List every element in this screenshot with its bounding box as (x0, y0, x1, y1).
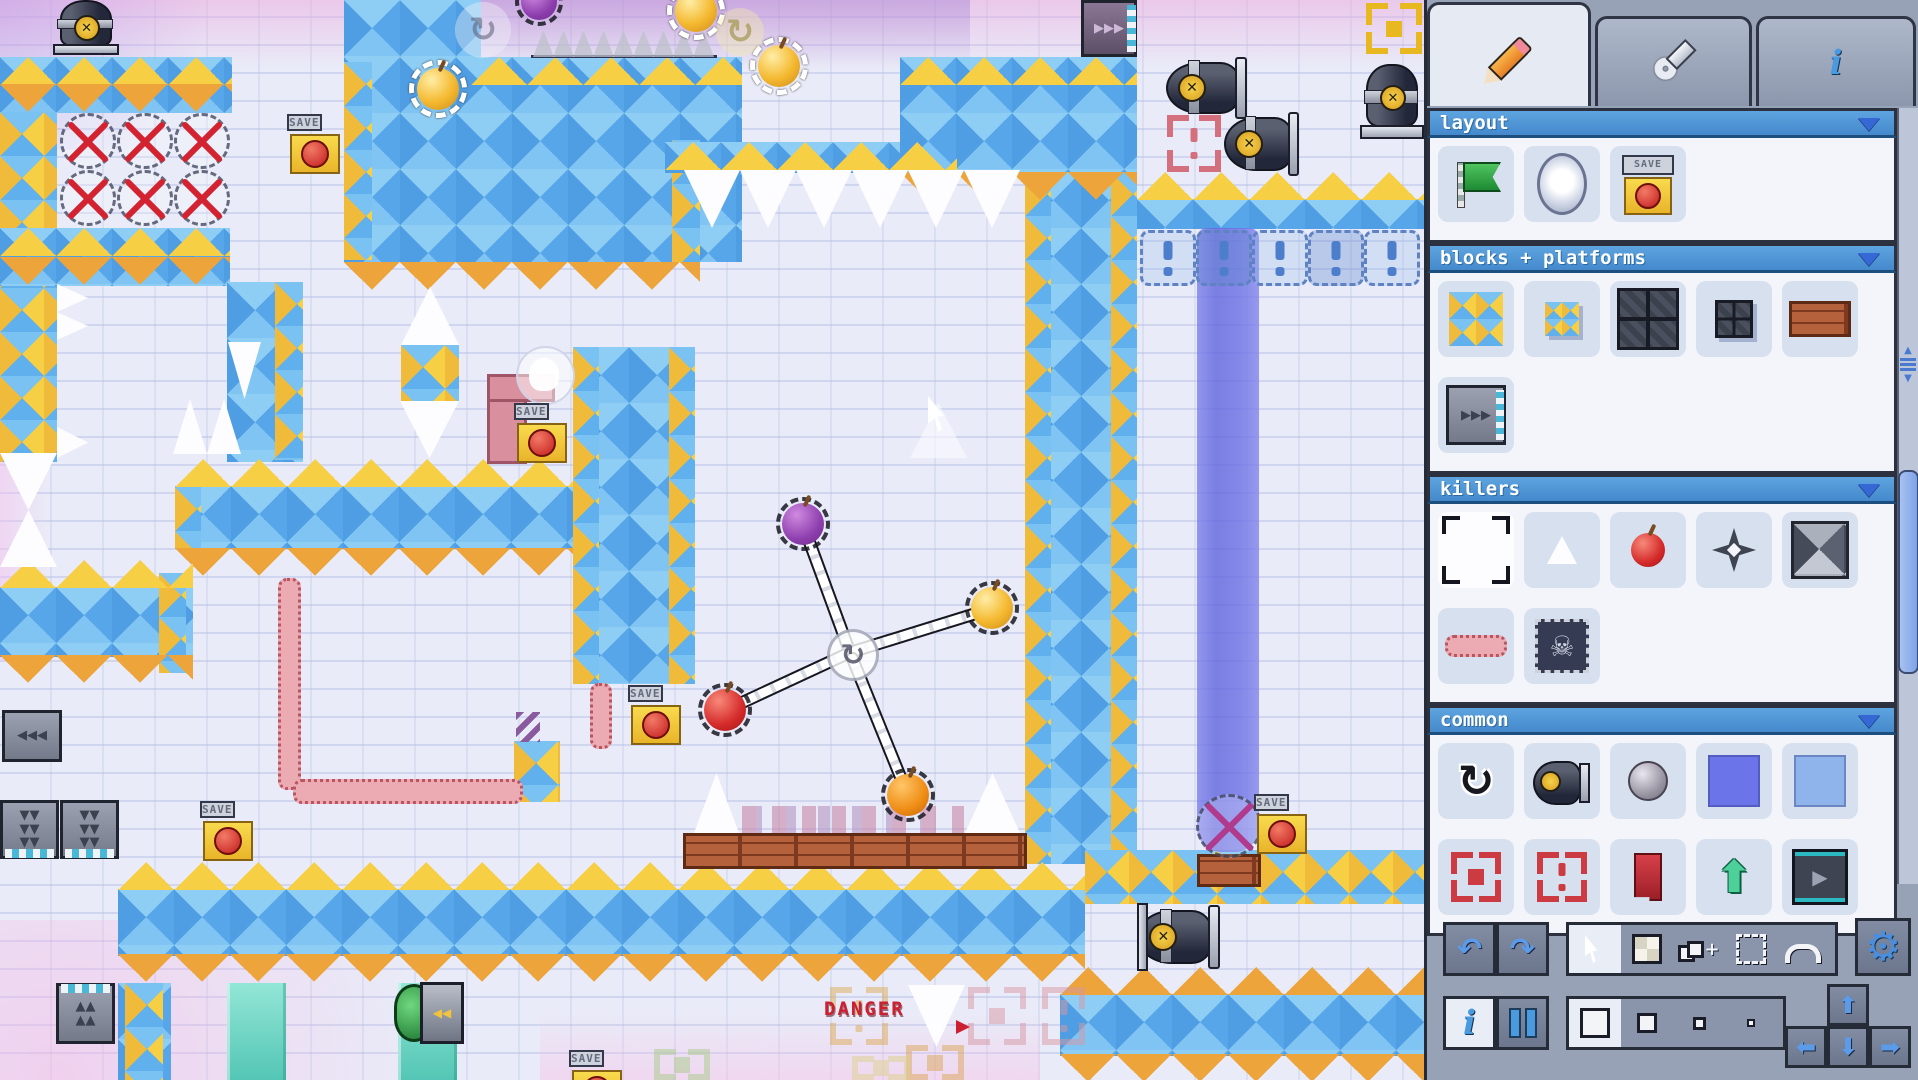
apple-icon (1631, 533, 1665, 567)
target-bracket[interactable] (968, 987, 1026, 1045)
save-button-icon (528, 429, 556, 457)
spike[interactable] (57, 427, 88, 458)
deleted-object-marker[interactable] (117, 113, 173, 169)
chevron-down-icon[interactable] (1858, 484, 1880, 497)
water-light-icon (1794, 755, 1846, 807)
killer-wiggle[interactable] (590, 683, 612, 749)
palette-item-conveyor[interactable]: ▶▶▶ (1438, 377, 1514, 453)
target-bracket[interactable] (1366, 3, 1422, 54)
section-body-blocks: ▶▶▶ (1427, 273, 1897, 474)
skull-block-icon: ☠ (1535, 619, 1589, 673)
conveyor-block[interactable]: ▶▶▶ (1081, 0, 1137, 57)
spike[interactable] (173, 399, 207, 454)
deleted-object-marker[interactable] (60, 113, 116, 169)
plus-icon: + (1704, 939, 1719, 960)
size-option-0[interactable] (1569, 999, 1621, 1047)
palette-item-spike-big[interactable] (1438, 512, 1514, 588)
platform-block[interactable] (573, 347, 599, 684)
redo-icon: ↷ (1510, 932, 1535, 967)
platform-block[interactable] (175, 486, 573, 549)
palette-item-brick[interactable] (1782, 281, 1858, 357)
wiggle-icon (1445, 635, 1507, 657)
grid-small-icon (1715, 300, 1753, 338)
palette-item-spike-block[interactable] (1782, 512, 1858, 588)
spike[interactable] (553, 30, 574, 57)
save-button-icon (214, 827, 242, 855)
target-bracket[interactable] (1167, 115, 1221, 172)
palette-item-spike-small[interactable] (1524, 512, 1600, 588)
tool-stamp[interactable]: + (1673, 925, 1725, 973)
windmill-hub[interactable]: ↻ (827, 629, 879, 681)
platform-crenellation (1060, 1054, 1424, 1080)
spike[interactable] (533, 30, 554, 57)
target-bracket[interactable] (852, 1056, 910, 1080)
size-square-icon (1637, 1013, 1657, 1033)
platform-crenellation (471, 57, 742, 85)
waterfall-strip[interactable] (227, 983, 286, 1080)
section-header-common[interactable]: common (1427, 705, 1897, 735)
conveyor-arrows-icon: ▲▲ ▲▲ (76, 1000, 96, 1027)
grid-big-icon (1617, 288, 1679, 350)
cursor-icon (1585, 935, 1605, 963)
deleted-object-marker[interactable] (117, 170, 173, 226)
cannon[interactable]: ✕ (1137, 905, 1225, 965)
info-icon: i (1463, 1003, 1476, 1043)
danger-text: DANGER (824, 998, 905, 1020)
section-header-layout[interactable]: layout (1427, 108, 1897, 138)
palette-item-water-light[interactable] (1782, 743, 1858, 819)
palette-item-cannon[interactable] (1524, 743, 1600, 819)
platform-crenellation (118, 954, 1085, 982)
arrow-down-icon: ⬇ (1838, 1033, 1858, 1061)
purple-zigzag[interactable] (516, 712, 540, 742)
section-title: killers (1440, 478, 1520, 500)
gear-icon: ⚙ (1865, 924, 1901, 970)
save-sign: SAVE (628, 685, 663, 702)
spike[interactable] (613, 30, 634, 57)
size-option-2[interactable] (1673, 999, 1725, 1047)
rotate-ghost-icon: ↻ (716, 8, 764, 56)
level-canvas[interactable]: ◀◀◀▼▼ ▼▼ ▼▼▼▼ ▼▼ ▼▼▲▲ ▲▲▶▶▶◀◀✕✕✕✕✕↻↻↻SAV… (0, 0, 1424, 1080)
target-bracket[interactable] (654, 1049, 710, 1080)
spike[interactable] (0, 453, 57, 510)
palette-item-portal[interactable] (1524, 146, 1600, 222)
platform-block[interactable] (0, 112, 57, 462)
tab-info[interactable]: i (1756, 16, 1916, 106)
tool-grid[interactable] (1621, 925, 1673, 973)
rotate-icon: ↻ (1458, 756, 1495, 807)
windmill-ball-purple[interactable] (515, 0, 563, 26)
stamp-icon (1687, 941, 1704, 958)
windmill-ball-purple[interactable] (776, 497, 830, 551)
tile-big-icon (1449, 292, 1503, 346)
scrollbar-thumb[interactable] (1898, 470, 1918, 674)
save-checkpoint[interactable]: SAVE (514, 402, 570, 462)
undo-icon: ↶ (1457, 932, 1482, 967)
spike[interactable] (633, 30, 654, 57)
platform-crenellation (0, 228, 230, 256)
spike[interactable] (0, 510, 57, 567)
toggle-block[interactable] (1364, 230, 1420, 286)
palette-item-water-dark[interactable] (1696, 743, 1772, 819)
platform-crenellation (1137, 172, 1424, 200)
pencil-icon (1474, 20, 1545, 91)
pause-icon (1509, 1008, 1521, 1038)
conveyor-arrows-icon: ▶▶▶ (1094, 22, 1124, 36)
save-checkpoint[interactable]: SAVE (628, 684, 684, 744)
danger-arrow-icon (956, 1020, 970, 1034)
toggle-block[interactable] (1196, 230, 1252, 286)
conveyor-block[interactable]: ▼▼ ▼▼ ▼▼ (0, 800, 59, 859)
platform-block[interactable] (118, 889, 1085, 956)
palette-item-grid-small[interactable] (1696, 281, 1772, 357)
grid-icon (1632, 934, 1662, 964)
chevron-down-icon[interactable] (1858, 118, 1880, 131)
size-square-icon (1580, 1008, 1610, 1038)
platform-crenellation (0, 655, 193, 683)
conveyor-block[interactable]: ◀◀◀ (2, 710, 62, 762)
settings-button[interactable]: ⚙ (1855, 918, 1911, 976)
windmill-ball-orange[interactable] (881, 768, 935, 822)
platform-crenellation (0, 84, 232, 112)
toggle-block[interactable] (1308, 230, 1364, 286)
save-button-icon (301, 140, 329, 168)
spike[interactable] (796, 170, 852, 228)
ghost-preview (516, 346, 575, 405)
tool-cursor[interactable] (1569, 925, 1621, 973)
platform-block[interactable] (1025, 172, 1051, 864)
save-button-icon (642, 711, 670, 739)
arrow-up-icon: ⬆ (1838, 991, 1858, 1019)
pan-up-button[interactable]: ⬆ (1827, 984, 1869, 1026)
toggle-block[interactable] (1252, 230, 1308, 286)
pan-right-button[interactable]: ➡ (1869, 1026, 1911, 1068)
editor-panel: i layoutSAVEblocks + platforms▶▶▶killers… (1424, 0, 1918, 1080)
section-body-layout: SAVE (1427, 138, 1897, 243)
palette-item-flag[interactable] (1438, 146, 1514, 222)
cannon[interactable]: ✕ (1166, 57, 1252, 115)
spike[interactable] (694, 773, 739, 833)
tool-marquee[interactable] (1725, 925, 1777, 973)
scrollbar-arrows-icon[interactable]: ▲▼ (1895, 345, 1918, 384)
brick-platform[interactable] (1197, 854, 1261, 887)
save-button-icon (1268, 820, 1296, 848)
save-checkpoint[interactable]: SAVE (569, 1049, 625, 1080)
palette-item-stone[interactable] (1610, 743, 1686, 819)
spike-block-icon (1791, 521, 1849, 579)
stone-icon (1628, 761, 1668, 801)
chevron-down-icon[interactable] (1858, 715, 1880, 728)
palette-item-wiggle[interactable] (1438, 608, 1514, 684)
spike[interactable] (57, 312, 88, 340)
deleted-object-marker[interactable] (60, 170, 116, 226)
save-checkpoint[interactable]: SAVE (287, 113, 343, 173)
level-editor-app: ◀◀◀▼▼ ▼▼ ▼▼▼▼ ▼▼ ▼▼▲▲ ▲▲▶▶▶◀◀✕✕✕✕✕↻↻↻SAV… (0, 0, 1918, 1080)
save-sign: SAVE (514, 403, 549, 420)
palette-item-grid-big[interactable] (1610, 281, 1686, 357)
pause-button[interactable] (1496, 996, 1549, 1050)
deleted-object-marker[interactable] (174, 113, 230, 169)
palette-item-tile-small[interactable] (1524, 281, 1600, 357)
rotate-ghost-icon: ↻ (455, 2, 511, 58)
palette-sections: layoutSAVEblocks + platforms▶▶▶killers☠c… (1427, 108, 1897, 936)
target-bracket[interactable] (1042, 987, 1085, 1045)
platform-block[interactable] (401, 345, 459, 401)
arrow-left-icon: ⬅ (1796, 1033, 1816, 1061)
editor-toolbar: ↶↷+⚙i⬆⬅⬇➡ (1427, 884, 1918, 1080)
tool-rotate-arc[interactable] (1777, 925, 1829, 973)
tool-strip: + (1566, 922, 1838, 976)
tile-small-icon (1545, 302, 1579, 336)
killer-wiggle[interactable] (278, 578, 301, 790)
spike-small-icon (1547, 536, 1577, 564)
deleted-object-marker[interactable] (174, 170, 230, 226)
pan-down-button[interactable]: ⬇ (1827, 1026, 1869, 1068)
platform-crenellation (0, 57, 232, 85)
save-sign: SAVE (569, 1050, 604, 1067)
save-sign: SAVE (200, 801, 235, 818)
deleted-object-marker[interactable] (1196, 794, 1262, 858)
platform-block[interactable] (669, 347, 695, 684)
palette-item-tile-big[interactable] (1438, 281, 1514, 357)
star-icon (1712, 528, 1756, 572)
tab-tools[interactable] (1595, 16, 1752, 106)
section-title: layout (1440, 112, 1509, 134)
cannon[interactable]: ✕ (1224, 112, 1304, 172)
chevron-down-icon[interactable] (1858, 253, 1880, 266)
platform-crenellation (900, 57, 1137, 85)
water-dark-icon (1708, 755, 1760, 807)
pan-left-button[interactable]: ⬅ (1785, 1026, 1827, 1068)
section-body-killers: ☠ (1427, 504, 1897, 705)
checkpoint-icon: SAVE (1622, 155, 1674, 213)
spike[interactable] (573, 30, 594, 57)
platform-block[interactable] (275, 282, 303, 460)
spike[interactable] (400, 401, 459, 458)
size-option-3[interactable] (1725, 999, 1777, 1047)
cannon-screw-icon: ✕ (1235, 130, 1263, 158)
cannon-screw-icon: ✕ (74, 15, 100, 41)
spike[interactable] (593, 30, 614, 57)
info-icon: i (1830, 43, 1843, 83)
palette-item-checkpoint[interactable]: SAVE (1610, 146, 1686, 222)
rotate-arc-icon (1785, 944, 1821, 963)
launcher-machine[interactable]: ◀◀ (394, 982, 458, 1042)
platform-block[interactable] (1137, 199, 1424, 229)
spike[interactable] (740, 170, 796, 228)
spike[interactable] (401, 287, 459, 345)
brick-icon (1789, 301, 1851, 337)
save-checkpoint[interactable]: SAVE (1254, 793, 1310, 853)
palette-item-star[interactable] (1696, 512, 1772, 588)
windmill-ball-red[interactable] (698, 683, 752, 737)
save-sign: SAVE (1622, 155, 1674, 175)
flag-icon (1451, 158, 1501, 210)
spike[interactable] (57, 284, 88, 312)
arrow-right-icon: ➡ (1880, 1033, 1900, 1061)
water-column[interactable] (1197, 228, 1259, 852)
size-option-1[interactable] (1621, 999, 1673, 1047)
info-button[interactable]: i (1443, 996, 1496, 1050)
platform-crenellation (0, 257, 230, 285)
platform-crenellation (344, 262, 700, 290)
conveyor-block[interactable]: ▼▼ ▼▼ ▼▼ (60, 800, 119, 859)
palette-item-skull-block[interactable]: ☠ (1524, 608, 1600, 684)
size-square-icon (1747, 1019, 1755, 1027)
undo-button[interactable]: ↶ (1443, 922, 1496, 976)
target-bracket[interactable] (906, 1045, 964, 1080)
cannon[interactable]: ✕ (55, 0, 113, 55)
size-strip (1566, 996, 1786, 1050)
windmill-ball-gold[interactable] (965, 581, 1019, 635)
marquee-icon (1736, 934, 1766, 964)
save-sign: SAVE (287, 114, 322, 131)
spike[interactable] (965, 773, 1020, 833)
collectible-orb[interactable] (409, 60, 467, 118)
platform-crenellation (665, 142, 957, 170)
section-title: common (1440, 709, 1509, 731)
platform-crenellation (175, 548, 573, 576)
platform-block[interactable] (125, 983, 163, 1080)
cannon[interactable]: ✕ (1362, 64, 1418, 139)
tab-edit[interactable] (1427, 2, 1591, 106)
palette-item-rotate[interactable]: ↻ (1438, 743, 1514, 819)
brick-platform[interactable] (683, 833, 1027, 869)
killer-wiggle[interactable] (293, 779, 523, 804)
portal-icon (1537, 153, 1587, 215)
section-header-killers[interactable]: killers (1427, 474, 1897, 504)
cannon-screw-icon: ✕ (1380, 85, 1406, 111)
cannon-icon (1533, 761, 1591, 801)
platform-block[interactable] (1111, 172, 1137, 864)
wrench-icon (1638, 27, 1709, 98)
pause-icon (1525, 1008, 1537, 1038)
conveyor-arrows-icon: ▼▼ ▼▼ ▼▼ (20, 809, 40, 850)
platform-block[interactable] (175, 487, 201, 548)
save-sign: SAVE (1254, 794, 1289, 811)
palette-item-apple[interactable] (1610, 512, 1686, 588)
size-square-icon (1693, 1017, 1706, 1030)
section-title: blocks + platforms (1440, 247, 1646, 269)
conveyor-arrows-icon: ▼▼ ▼▼ ▼▼ (80, 809, 100, 850)
conveyor-arrows-icon: ◀◀◀ (17, 729, 47, 743)
platform-block[interactable] (344, 62, 372, 260)
section-header-blocks[interactable]: blocks + platforms (1427, 243, 1897, 273)
platform-block[interactable] (1060, 994, 1424, 1056)
conveyor-icon: ▶▶▶ (1446, 385, 1506, 445)
conveyor-block[interactable]: ▲▲ ▲▲ (56, 983, 115, 1044)
platform-crenellation (1060, 967, 1424, 995)
danger-label: DANGER (824, 998, 944, 1024)
save-button-icon (583, 1076, 611, 1080)
redo-button[interactable]: ↷ (1496, 922, 1549, 976)
save-checkpoint[interactable]: SAVE (200, 800, 256, 860)
toggle-block[interactable] (1140, 230, 1196, 286)
